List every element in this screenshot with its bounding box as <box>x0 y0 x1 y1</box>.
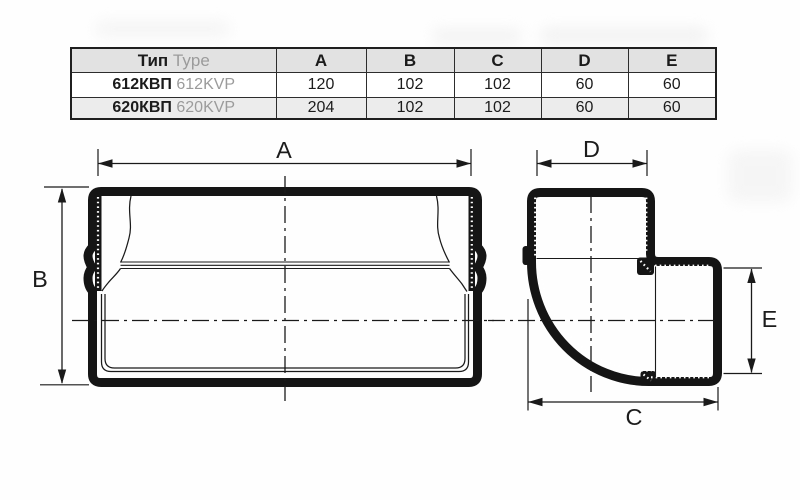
left-hatch-strip <box>95 194 102 291</box>
junction-bead <box>637 258 654 276</box>
technical-drawing: A B D <box>0 0 800 500</box>
dim-e-arrow-down <box>747 359 755 374</box>
duct-fitting-datasheet: { "table": { "header": { "type_ru": "Тип… <box>0 0 800 500</box>
dim-e-extension-lines <box>724 268 763 374</box>
dim-b-arrow-down <box>58 370 66 385</box>
dim-e-arrow-up <box>747 269 755 284</box>
elbow-outer-wall <box>532 193 718 382</box>
duct-side-view: A B <box>32 137 494 401</box>
break-line <box>121 196 132 263</box>
dim-c-arrow-left <box>528 398 543 406</box>
dim-a-arrow-right <box>457 159 472 167</box>
break-line <box>102 269 121 292</box>
dim-c-extension-lines <box>528 299 718 411</box>
elbow-view: D E C <box>488 136 777 430</box>
dim-label-a: A <box>276 137 292 163</box>
dim-d-arrow-left <box>537 159 552 167</box>
break-line <box>437 196 450 263</box>
dim-c-arrow-right <box>704 398 719 406</box>
dim-d-arrow-right <box>633 159 648 167</box>
dim-label-b: B <box>32 266 48 292</box>
dim-label-d: D <box>583 136 600 162</box>
dim-label-c: C <box>626 404 643 430</box>
dim-a-arrow-left <box>98 159 113 167</box>
left-wall-bead <box>523 246 530 265</box>
bend-dots <box>540 260 651 371</box>
dim-label-e: E <box>762 306 778 332</box>
break-line <box>450 269 468 292</box>
right-hatch-strip <box>469 194 476 291</box>
dim-b-arrow-up <box>58 188 66 203</box>
